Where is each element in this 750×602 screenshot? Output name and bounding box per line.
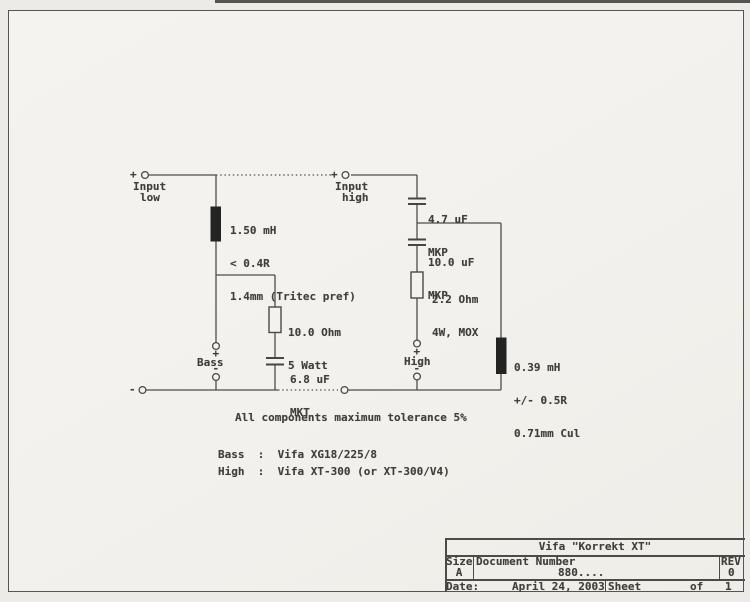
input-high-label-line2: high [342,192,369,203]
rev-value: 0 [728,567,735,578]
input-high-plus-sign: + [331,169,338,180]
resistor-2-2ohm-label: 2.2 Ohm 4W, MOX [432,273,478,361]
input-high-terminal [342,172,349,179]
capacitor-6-8uf-symbol [266,358,284,365]
date-sheet-divider [605,579,606,592]
label-line: 10.0 Ohm [288,328,341,339]
high-minus-sign: - [414,363,421,374]
return-high-terminal [341,387,348,394]
resistor-2-2ohm-symbol [411,272,423,298]
sheet-total-value: 1 [725,581,732,592]
size-value: A [445,567,473,578]
document-number-value: 880.... [558,567,604,578]
label-line: 1.50 mH [230,226,356,237]
label-line: 2.2 Ohm [432,295,478,306]
label-line: 0.39 mH [514,363,580,374]
capacitor-6-8uf-label: 6.8 uF MKT [290,353,330,441]
inductor-0-39mh-symbol [497,338,507,374]
label-line: 1.4mm (Tritec pref) [230,292,356,303]
date-value: April 24, 2003 [512,581,605,592]
input-low-terminal [142,172,149,179]
sheet-of-label: of [690,581,703,592]
capacitor-4-7uf-symbol [408,199,426,205]
input-low-plus-sign: + [130,169,137,180]
bass-driver-note: Bass : Vifa XG18/225/8 [218,449,377,460]
bass-minus-sign: - [213,363,220,374]
schematic-page: + Input low + Input high - 1.50 mH < 0.4… [0,0,750,602]
label-line: 4W, MOX [432,328,478,339]
tolerance-note: All components maximum tolerance 5% [235,412,467,423]
date-label: Date: [446,581,479,592]
high-driver-note: High : Vifa XT-300 (or XT-300/V4) [218,466,450,477]
capacitor-10uf-symbol [408,240,426,246]
inductor-1-50mh-symbol [211,207,221,241]
label-line: +/- 0.5R [514,396,580,407]
bass-terminal-label: Bass [197,357,224,368]
return-minus-sign: - [129,384,136,395]
label-line: 10.0 uF [428,258,474,269]
label-line: 6.8 uF [290,375,330,386]
circuit-graphics [0,0,750,602]
title-block-title: Vifa "Korrekt XT" [445,541,745,552]
label-line: 0.71mm Cul [514,429,580,440]
top-rail-solid-wire [149,175,418,207]
return-low-terminal [139,387,146,394]
sheet-label: Sheet [608,581,641,592]
inductor-0-39mh-label: 0.39 mH +/- 0.5R 0.71mm Cul [514,341,580,461]
label-line: < 0.4R [230,259,356,270]
label-line: 4.7 uF [428,215,468,226]
input-low-label-line2: low [140,192,160,203]
size-doc-divider [473,555,474,579]
top-rail-wires [149,175,418,207]
